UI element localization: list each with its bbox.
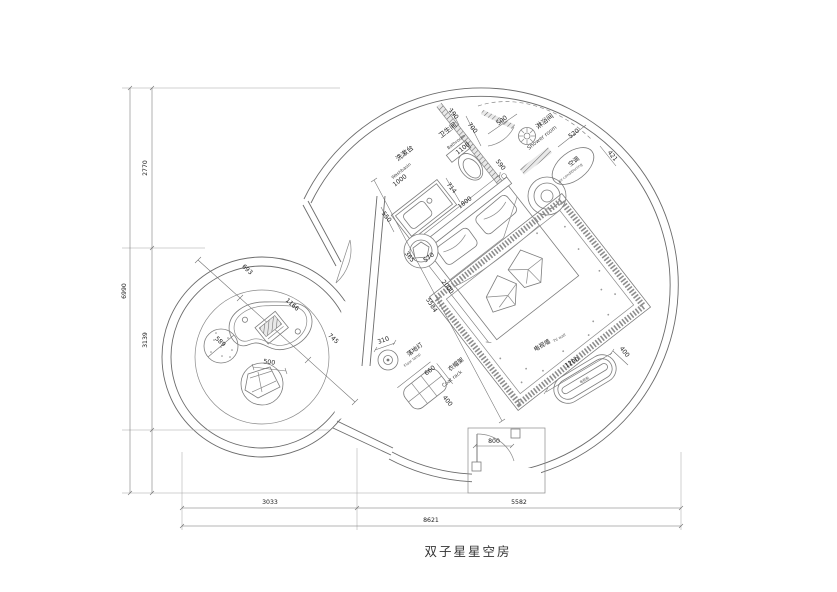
coat-rack-label-cn: 衣帽架 xyxy=(446,356,465,373)
dim-3033: 3033 xyxy=(262,499,278,506)
corridor-opening-mask xyxy=(334,300,374,422)
dim-590: 590 xyxy=(494,158,507,172)
dim-310: 310 xyxy=(377,335,391,346)
tv-dims xyxy=(544,349,628,394)
dim-1166: 1166 xyxy=(284,297,300,313)
dim-3139: 3139 xyxy=(142,332,149,348)
dim-745: 745 xyxy=(326,332,340,345)
dim-800: 800 xyxy=(488,438,500,445)
dim-6990: 6990 xyxy=(121,283,128,299)
entry-wall-opening-mask xyxy=(472,468,541,492)
dim-550: 550 xyxy=(380,210,393,224)
bathroom-door xyxy=(482,112,514,146)
dim-2770: 2770 xyxy=(142,160,149,176)
inner-door xyxy=(336,240,351,283)
dim-500-chair: 500 xyxy=(263,358,276,367)
kidney-table xyxy=(224,290,318,362)
shower-bench xyxy=(522,150,550,172)
dim-520: 520 xyxy=(567,127,581,140)
dim-400-tv: 400 xyxy=(618,345,631,359)
small-room-walls xyxy=(162,257,362,457)
left-dimensions xyxy=(122,86,468,495)
drawing-title: 双子星星空房 xyxy=(424,544,511,559)
lounge-chair xyxy=(241,363,287,405)
tv-wall-label-cn: 电视墙 xyxy=(532,337,552,353)
dim-589: 589 xyxy=(213,335,227,348)
floor-plan-canvas: 洗漱台 Washbasin 1000 卫生间 Bathroom 1100 淋浴间… xyxy=(0,0,837,592)
dim-714: 714 xyxy=(445,181,458,195)
dim-8621: 8621 xyxy=(423,517,439,524)
floor-plan-drawing: 洗漱台 Washbasin 1000 卫生间 Bathroom 1100 淋浴间… xyxy=(0,0,837,592)
coat-rack-label-en: Coat rack xyxy=(441,369,464,389)
dim-660: 660 xyxy=(423,364,437,377)
dim-5582: 5582 xyxy=(511,499,527,506)
dim-5584: 5584 xyxy=(424,297,438,314)
dim-421: 421 xyxy=(606,149,619,163)
small-room-dim-line xyxy=(195,257,358,405)
washbasin-label-cn: 洗漱台 xyxy=(394,143,416,163)
dim-400-rack: 400 xyxy=(441,394,454,408)
dim-700: 700 xyxy=(466,121,479,135)
tv-wall-label-en: TV wall xyxy=(551,332,566,344)
dim-693: 693 xyxy=(240,263,254,276)
